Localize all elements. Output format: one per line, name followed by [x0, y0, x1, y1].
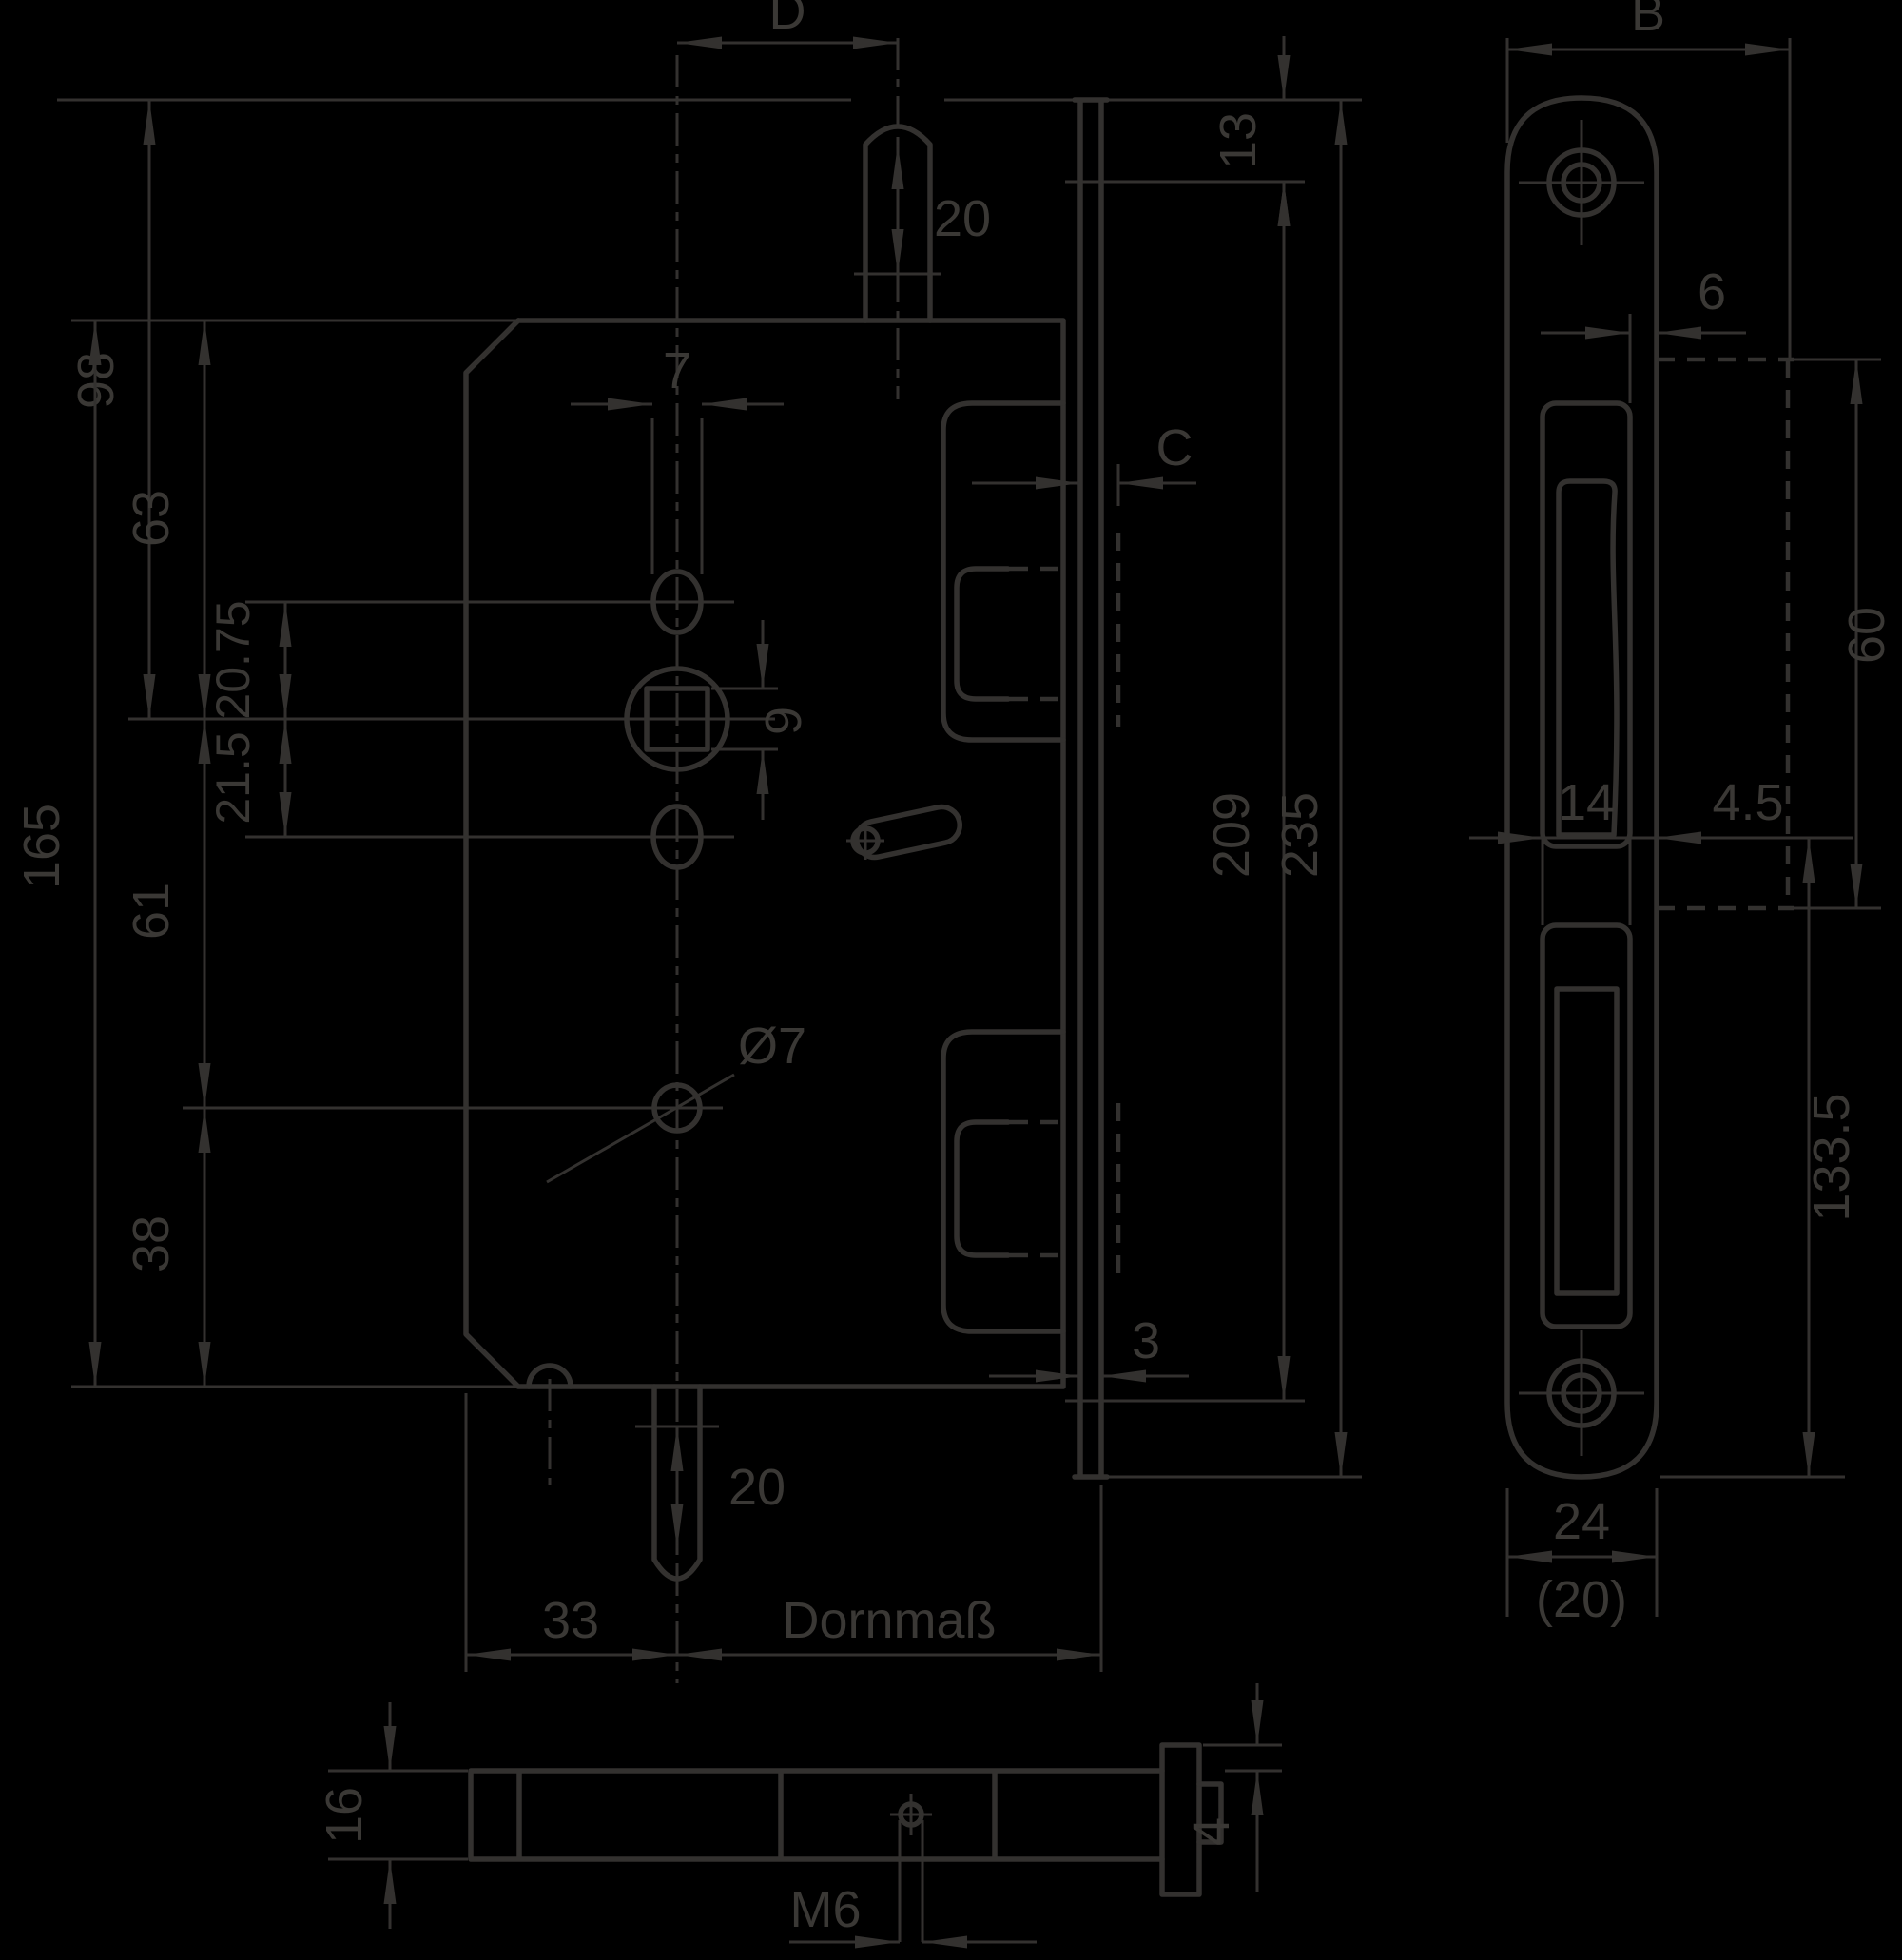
- dim-20-top: 20: [854, 145, 991, 274]
- dim-16: 16: [316, 1702, 468, 1929]
- dim-label-9: 9: [755, 707, 812, 735]
- case-outline: [466, 320, 1063, 1387]
- dim-label-D: D: [769, 0, 806, 40]
- dim-label-235: 235: [1271, 792, 1329, 878]
- lock-technical-drawing: D 20 13 209 235 C: [0, 0, 1902, 1960]
- dim-label-63: 63: [123, 490, 180, 547]
- dim-133-5: 133.5: [1660, 838, 1860, 1477]
- dim-20-bottom: 20: [635, 1426, 786, 1548]
- dim-38: 38: [123, 1108, 204, 1387]
- dim-label-20-75: 20.75: [206, 600, 260, 719]
- front-view: D 20 13 209 235 C: [13, 0, 1362, 1683]
- dim-label-dia7: Ø7: [738, 1018, 806, 1075]
- cam-lever: [846, 804, 963, 861]
- faceplate-view: B 6 60 14 4.5: [1469, 0, 1895, 1628]
- deadbolt-assembly: [943, 1032, 1118, 1331]
- dim-label-133-5: 133.5: [1803, 1093, 1860, 1221]
- leader-line: [547, 1075, 734, 1182]
- faceplate-screw-bottom: [1519, 1330, 1644, 1456]
- dim-98: 98: [68, 100, 149, 719]
- top-down-view: M6 16 4: [316, 1683, 1282, 1942]
- dim-20-75: 20.75: [206, 600, 285, 719]
- dim-label-C: C: [1156, 419, 1194, 476]
- dim-209: 209: [1203, 182, 1284, 1401]
- faceplate-side: [1075, 100, 1107, 1477]
- dim-D: D: [677, 0, 898, 43]
- dim-63: 63: [123, 320, 204, 719]
- dim-C: C: [972, 419, 1196, 506]
- dim-13: 13: [1210, 36, 1284, 245]
- dim-label-21-5: 21.5: [206, 731, 260, 824]
- dim-label-14: 14: [1558, 774, 1615, 831]
- dim-21-5: 21.5: [206, 719, 285, 837]
- dim-M6: M6: [789, 1881, 1037, 1942]
- dim-label-4-5: 4.5: [1712, 774, 1783, 831]
- dim-61: 61: [123, 719, 204, 1108]
- dim-label-16: 16: [316, 1787, 373, 1844]
- dim-label-24: 24: [1553, 1493, 1610, 1550]
- dim-label-dornmass: Dornmaß: [782, 1592, 996, 1649]
- dim-6: 6: [1541, 263, 1746, 403]
- case-top-view: [471, 1771, 1162, 1859]
- dim-33: 33: [466, 1393, 677, 1672]
- dim-label-20-bottom: 20: [728, 1459, 786, 1516]
- dim-label-38: 38: [123, 1215, 180, 1272]
- dim-label-60: 60: [1838, 607, 1895, 664]
- dim-label-165: 165: [13, 804, 70, 889]
- m6-hole: [890, 1794, 932, 1942]
- deadbolt-face: [1557, 989, 1617, 1293]
- dim-label-7: 7: [663, 342, 691, 399]
- dim-24: 24 (20): [1507, 1488, 1657, 1628]
- dim-label-4: 4: [1183, 1817, 1240, 1846]
- dim-label-B: B: [1631, 0, 1665, 42]
- dim-label-6: 6: [1698, 263, 1726, 320]
- dim-label-3: 3: [1132, 1312, 1160, 1369]
- dim-label-61: 61: [123, 883, 180, 940]
- dim-label-20-top: 20: [934, 190, 991, 247]
- faceplate-screw-top: [1519, 120, 1644, 245]
- dim-dia7: Ø7: [183, 1018, 806, 1182]
- dim-4-5: 4.5: [1657, 774, 1853, 838]
- dim-235: 235: [1271, 100, 1341, 1477]
- dim-label-33: 33: [542, 1592, 599, 1649]
- dim-label-13: 13: [1210, 112, 1267, 169]
- dim-3: 3: [989, 1312, 1189, 1376]
- dim-label-20-alt: (20): [1536, 1571, 1627, 1628]
- dim-label-M6: M6: [789, 1881, 861, 1938]
- dim-165: 165: [13, 320, 518, 1387]
- dim-label-209: 209: [1203, 792, 1260, 878]
- dim-60: 60: [1794, 359, 1895, 908]
- latch-assembly: [943, 403, 1118, 740]
